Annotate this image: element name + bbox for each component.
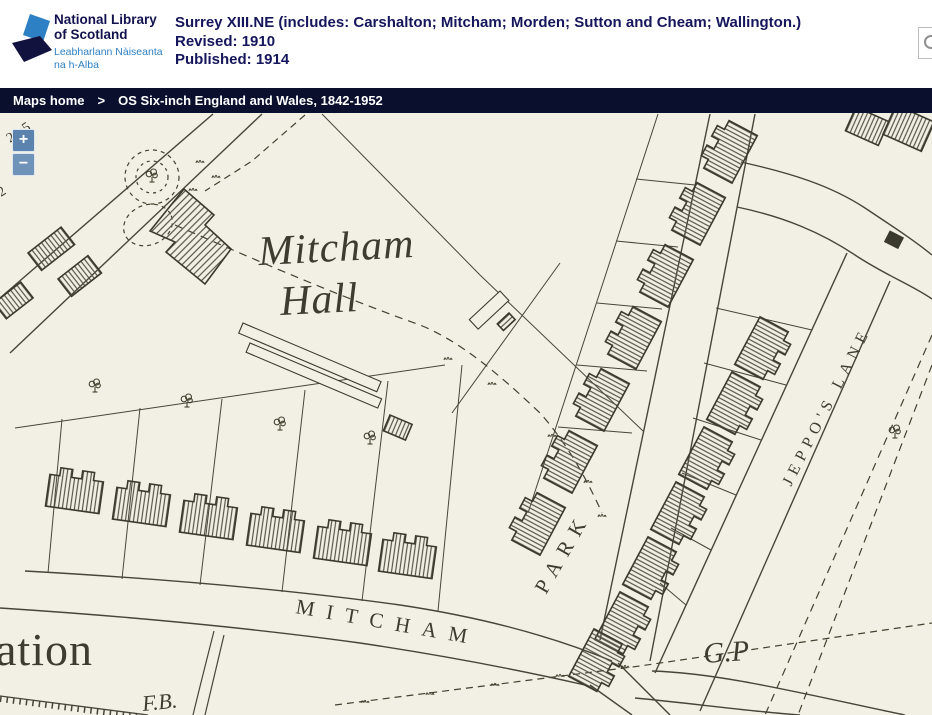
breadcrumb: Maps home > OS Six-inch England and Wale… [0,88,932,113]
logo-org-line2: of Scotland [54,27,163,42]
map-label-mitcham-hall-2: Hall [278,275,360,325]
site-header: National Library of Scotland Leabharlann… [0,0,932,88]
zoom-in-button[interactable]: + [12,129,35,152]
logo-gaelic-line2: na h-Alba [54,59,163,72]
historic-map-canvas[interactable]: MitchamHallMITCHAMPARKJEPPO'S LANEG.PF.B… [0,113,932,715]
map-label-ation-partial: ation [0,624,93,675]
map-title-block: Surrey XIII.NE (includes: Carshalton; Mi… [175,14,801,70]
breadcrumb-current[interactable]: OS Six-inch England and Wales, 1842-1952 [118,93,383,108]
zoom-controls: + − [12,129,35,176]
logo-org-line1: National Library [54,12,163,27]
zoom-out-button[interactable]: − [12,153,35,176]
map-label-mitcham-hall-1: Mitcham [256,221,415,275]
map-sheet-title: Surrey XIII.NE (includes: Carshalton; Mi… [175,14,801,33]
nls-logo[interactable]: National Library of Scotland Leabharlann… [10,10,170,80]
map-revised-date: Revised: 1910 [175,33,801,52]
map-published-date: Published: 1914 [175,51,801,70]
breadcrumb-separator: > [98,93,106,108]
breadcrumb-maps-home[interactable]: Maps home [13,93,85,108]
nls-logo-icon [10,12,54,70]
map-label-foot-bridge: F.B. [140,687,178,715]
logo-gaelic-line1: Leabharlann Nàiseanta [54,46,163,59]
map-viewer[interactable]: MitchamHallMITCHAMPARKJEPPO'S LANEG.PF.B… [0,113,932,715]
search-icon [924,35,932,49]
map-label-guide-post: G.P [702,635,750,670]
search-button[interactable] [918,27,932,59]
